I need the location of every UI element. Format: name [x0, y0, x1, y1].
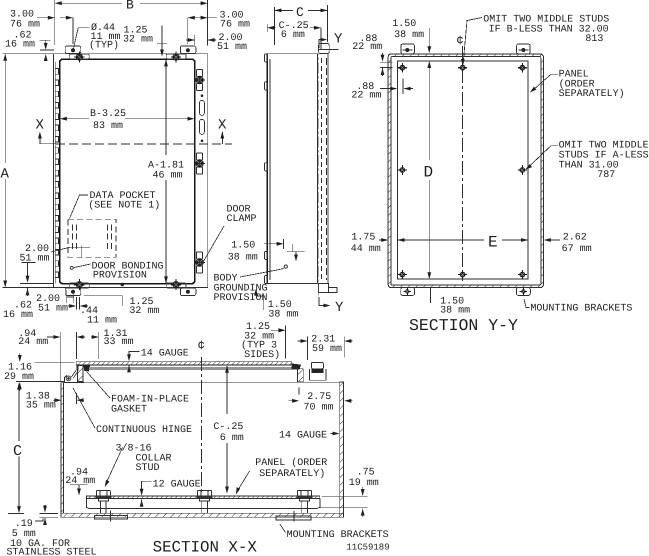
svg-text:76 mm: 76 mm — [220, 19, 250, 30]
svg-text:MOUNTING BRACKETS: MOUNTING BRACKETS — [530, 304, 632, 315]
svg-text:59 mm: 59 mm — [312, 344, 342, 355]
svg-text:2.62: 2.62 — [563, 232, 587, 243]
svg-text:X: X — [36, 118, 45, 134]
svg-text:32 mm: 32 mm — [123, 34, 153, 45]
svg-text:¢: ¢ — [456, 34, 464, 48]
svg-text:51 mm: 51 mm — [20, 254, 50, 265]
svg-text:14 GAUGE: 14 GAUGE — [279, 431, 327, 442]
svg-text:33 mm: 33 mm — [104, 337, 134, 348]
svg-text:SECTION Y-Y: SECTION Y-Y — [409, 316, 518, 335]
svg-text:16 mm: 16 mm — [5, 39, 35, 50]
svg-text:19 mm: 19 mm — [349, 478, 379, 489]
svg-text:PANEL (ORDER: PANEL (ORDER — [255, 457, 327, 469]
svg-text:A: A — [1, 167, 10, 183]
svg-text:46 mm: 46 mm — [153, 170, 183, 181]
svg-text:(TYP): (TYP) — [89, 40, 119, 52]
svg-text:PROVISION: PROVISION — [214, 293, 268, 304]
svg-text:(SEE NOTE 1): (SEE NOTE 1) — [88, 200, 160, 212]
svg-text:6 mm: 6 mm — [220, 433, 244, 444]
svg-text:22 mm: 22 mm — [351, 91, 381, 102]
svg-text:35 mm: 35 mm — [26, 400, 56, 411]
svg-text:X: X — [218, 118, 227, 134]
svg-text:GASKET: GASKET — [111, 404, 147, 415]
svg-text:SIDES): SIDES) — [244, 349, 280, 361]
svg-text:STUD: STUD — [136, 463, 160, 474]
svg-text:51 mm: 51 mm — [38, 303, 68, 314]
svg-text:2.75: 2.75 — [307, 392, 331, 403]
svg-text:C-.25: C-.25 — [213, 422, 243, 433]
svg-text:813: 813 — [585, 34, 603, 45]
svg-text:1.50: 1.50 — [392, 19, 416, 30]
svg-text:24 mm: 24 mm — [18, 337, 48, 348]
svg-text:14 GAUGE: 14 GAUGE — [141, 348, 189, 359]
svg-text:B: B — [126, 0, 134, 13]
svg-text:C: C — [13, 443, 22, 460]
svg-text:11 mm: 11 mm — [87, 315, 117, 326]
svg-text:67 mm: 67 mm — [562, 244, 592, 255]
svg-text:38 mm: 38 mm — [440, 306, 470, 317]
svg-text:22 mm: 22 mm — [352, 42, 382, 53]
svg-text:24 mm: 24 mm — [65, 476, 95, 487]
svg-text:44 mm: 44 mm — [351, 244, 381, 255]
svg-text:70 mm: 70 mm — [304, 403, 334, 414]
svg-text:38 mm: 38 mm — [394, 30, 424, 41]
svg-text:PROVISION: PROVISION — [93, 271, 147, 282]
svg-text:SEPARATELY): SEPARATELY) — [559, 88, 625, 100]
svg-text:1.50: 1.50 — [231, 241, 255, 252]
svg-text:6 mm: 6 mm — [281, 30, 305, 41]
svg-text:STAINLESS STEEL: STAINLESS STEEL — [7, 548, 97, 556]
svg-text:Y: Y — [334, 32, 343, 48]
svg-text:CONTINUOUS HINGE: CONTINUOUS HINGE — [96, 425, 192, 436]
svg-text:16 mm: 16 mm — [3, 310, 33, 321]
svg-text:76 mm: 76 mm — [10, 19, 40, 30]
svg-text:1.75: 1.75 — [351, 232, 375, 243]
svg-text:83 mm: 83 mm — [93, 121, 123, 132]
svg-text:51 mm: 51 mm — [217, 42, 247, 53]
svg-text:12 GAUGE: 12 GAUGE — [153, 479, 201, 490]
svg-text:MOUNTING BRACKETS: MOUNTING BRACKETS — [287, 530, 389, 541]
svg-text:D: D — [424, 164, 434, 182]
svg-text:38 mm: 38 mm — [268, 310, 298, 321]
svg-text:E: E — [488, 234, 498, 252]
svg-text:Y: Y — [335, 300, 344, 316]
svg-text:C: C — [296, 5, 304, 20]
svg-text:CLAMP: CLAMP — [227, 214, 257, 225]
svg-text:11C59189: 11C59189 — [346, 543, 389, 553]
svg-text:32 mm: 32 mm — [129, 306, 159, 317]
svg-text:SECTION X-X: SECTION X-X — [153, 538, 258, 556]
svg-text:SEPARATELY): SEPARATELY) — [259, 468, 325, 480]
svg-text:787: 787 — [597, 170, 615, 181]
svg-text:38 mm: 38 mm — [228, 253, 258, 264]
svg-text:B-3.25: B-3.25 — [90, 109, 126, 120]
svg-text:¢: ¢ — [198, 339, 206, 353]
